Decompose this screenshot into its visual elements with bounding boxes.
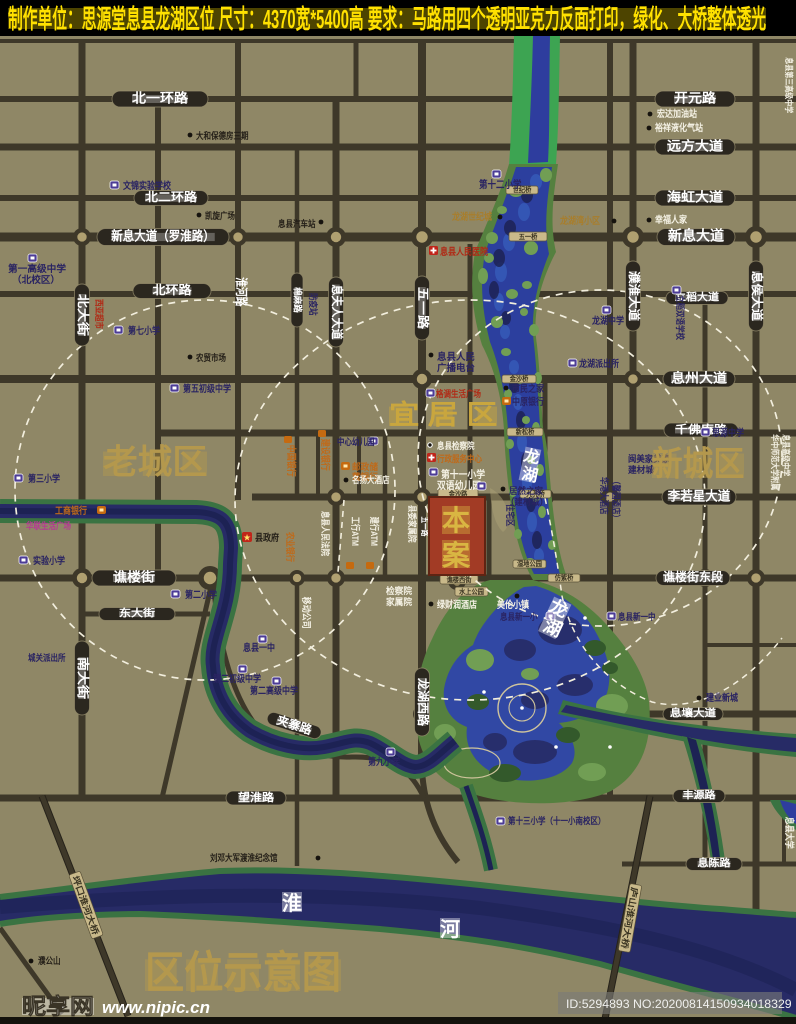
svg-text:息县人民: 息县人民 <box>437 351 475 363</box>
svg-text:水上公园: 水上公园 <box>459 587 484 596</box>
svg-text:农贸市场: 农贸市场 <box>195 352 226 363</box>
svg-text:★: ★ <box>243 533 251 543</box>
svg-text:息夫人大道: 息夫人大道 <box>330 285 345 340</box>
svg-text:新松桥: 新松桥 <box>516 427 535 436</box>
svg-text:凯旋广场: 凯旋广场 <box>205 210 235 221</box>
svg-text:制作单位：思源堂息县龙湖区位 尺寸：4370宽*5400高: 制作单位：思源堂息县龙湖区位 尺寸：4370宽*5400高 要求：马路用四个透明… <box>8 4 766 34</box>
svg-text:谯楼西街: 谯楼西街 <box>447 575 472 584</box>
svg-text:防疫站: 防疫站 <box>308 293 319 316</box>
svg-text:第五初级中学: 第五初级中学 <box>183 383 231 395</box>
svg-text:第二高级中学: 第二高级中学 <box>250 685 298 697</box>
svg-text:息州大道: 息州大道 <box>671 370 727 385</box>
svg-text:宜 居 区: 宜 居 区 <box>389 399 497 430</box>
svg-text:第三小学: 第三小学 <box>28 473 60 485</box>
svg-text:龙湖世纪城: 龙湖世纪城 <box>451 211 492 223</box>
svg-text:濮公山: 濮公山 <box>37 955 60 966</box>
svg-text:第十三小学（十一小南校区）: 第十三小学（十一小南校区） <box>508 815 606 826</box>
svg-text:息县大学: 息县大学 <box>783 817 795 849</box>
svg-text:息县汽车站: 息县汽车站 <box>278 218 316 229</box>
svg-text:华港大酒店: 华港大酒店 <box>599 477 610 515</box>
svg-text:西亚超市: 西亚超市 <box>94 299 105 329</box>
svg-text:新息大道: 新息大道 <box>668 228 724 244</box>
svg-text:五一桥: 五一桥 <box>519 232 538 241</box>
svg-text:刘邓大军渡淮纪念馆: 刘邓大军渡淮纪念馆 <box>210 852 278 863</box>
svg-text:实验小学: 实验小学 <box>33 555 65 567</box>
svg-text:南大街: 南大街 <box>76 657 91 699</box>
svg-text:谯楼街: 谯楼街 <box>113 569 155 584</box>
svg-text:（建材城）: （建材城） <box>506 496 548 507</box>
svg-text:息县人民医院: 息县人民医院 <box>440 246 488 258</box>
svg-text:华中师范大学附属: 华中师范大学附属 <box>770 434 780 490</box>
svg-text:淮河路: 淮河路 <box>234 277 249 307</box>
svg-text:息县高级中学: 息县高级中学 <box>781 434 791 477</box>
svg-text:立稻双语学校: 立稻双语学校 <box>675 295 686 341</box>
svg-text:谯楼街东段: 谯楼街东段 <box>663 569 724 584</box>
svg-text:龙湖湾小区: 龙湖湾小区 <box>559 215 600 227</box>
svg-text:濮淮大道: 濮淮大道 <box>627 271 642 321</box>
svg-text:县政府: 县政府 <box>255 532 279 544</box>
svg-text:新城区: 新城区 <box>652 445 744 483</box>
svg-text:第十一小学: 第十一小学 <box>441 468 485 481</box>
svg-text:湿地公园: 湿地公园 <box>517 559 542 568</box>
svg-text:案: 案 <box>442 539 471 571</box>
svg-text:淮: 淮 <box>282 892 302 915</box>
svg-text:城关派出所: 城关派出所 <box>28 652 66 663</box>
svg-text:仿紫桥: 仿紫桥 <box>555 573 574 582</box>
svg-text:龙湖派出所: 龙湖派出所 <box>578 358 619 370</box>
svg-text:幸福人家: 幸福人家 <box>655 214 687 226</box>
svg-text:第二小学: 第二小学 <box>185 589 217 601</box>
svg-text:（北校区）: （北校区） <box>12 274 60 286</box>
svg-text:住宅区: 住宅区 <box>505 504 516 527</box>
svg-text:北一环路: 北一环路 <box>132 90 189 105</box>
svg-text:中心幼儿园: 中心幼儿园 <box>337 436 375 447</box>
svg-text:市民之家: 市民之家 <box>512 383 544 395</box>
svg-text:大和保德房三期: 大和保德房三期 <box>196 130 249 141</box>
svg-text:息陈路: 息陈路 <box>698 857 732 870</box>
svg-text:建材城: 建材城 <box>628 464 654 475</box>
svg-text:新息大道（罗淮路）: 新息大道（罗淮路） <box>111 227 215 243</box>
svg-text:行政服务中心: 行政服务中心 <box>436 453 482 464</box>
svg-text:金沙桥: 金沙桥 <box>509 374 529 383</box>
svg-text:农业银行: 农业银行 <box>285 531 296 562</box>
svg-text:移动公司: 移动公司 <box>300 597 312 629</box>
svg-text:邮政储: 邮政储 <box>352 461 378 472</box>
svg-text:李若星大道: 李若星大道 <box>667 488 730 503</box>
svg-text:丰源路: 丰源路 <box>683 789 717 802</box>
svg-text:裕祥液化气站: 裕祥液化气站 <box>654 122 703 134</box>
svg-text:格调生活广场: 格调生活广场 <box>436 388 481 399</box>
svg-text:居然之家: 居然之家 <box>509 485 544 496</box>
svg-text:第九小学: 第九小学 <box>368 756 400 768</box>
svg-text:华联生活广场: 华联生活广场 <box>26 520 71 531</box>
svg-text:区位示意图: 区位示意图 <box>145 948 341 997</box>
svg-text:文锦实验学校: 文锦实验学校 <box>122 180 171 192</box>
svg-text:工商银行: 工商银行 <box>55 505 87 517</box>
svg-text:息侯大道: 息侯大道 <box>750 271 765 321</box>
svg-text:第二初级中学: 第二初级中学 <box>213 673 261 685</box>
svg-text:（馨园酒店）: （馨园酒店） <box>611 477 622 522</box>
svg-text:双语幼儿园: 双语幼儿园 <box>437 479 481 492</box>
svg-text:息县新一小: 息县新一小 <box>500 611 538 622</box>
svg-text:昵享网: 昵享网 <box>22 994 94 1019</box>
svg-text:思源中学: 思源中学 <box>712 427 744 439</box>
svg-text:建设银行: 建设银行 <box>319 438 331 471</box>
svg-text:棉麻路: 棉麻路 <box>293 287 304 313</box>
svg-text:第一高级中学: 第一高级中学 <box>8 263 66 275</box>
svg-text:第十二小学: 第十二小学 <box>479 178 522 191</box>
svg-text:广播电台: 广播电台 <box>437 362 475 374</box>
svg-text:息县检察院: 息县检察院 <box>437 440 475 451</box>
svg-text:中国银行: 中国银行 <box>285 445 297 477</box>
svg-text:望淮路: 望淮路 <box>238 790 275 804</box>
svg-text:北大街: 北大街 <box>76 294 91 336</box>
svg-text:建业新城: 建业新城 <box>705 692 738 704</box>
svg-text:名扬大酒店: 名扬大酒店 <box>352 474 390 485</box>
svg-text:息县第三高级中学: 息县第三高级中学 <box>784 57 794 114</box>
svg-text:ID:5294893 NO:2020081415093401: ID:5294893 NO:20200814150934018329 <box>566 997 792 1011</box>
svg-text:海虹大道: 海虹大道 <box>667 189 723 204</box>
svg-text:第七小学: 第七小学 <box>128 325 160 337</box>
svg-text:远方大道: 远方大道 <box>667 138 723 153</box>
svg-text:老城区: 老城区 <box>103 443 207 481</box>
svg-text:家属院: 家属院 <box>386 596 412 607</box>
svg-text:息县新一中: 息县新一中 <box>618 611 656 622</box>
svg-text:五一路: 五一路 <box>416 287 431 330</box>
svg-text:息壤大道: 息壤大道 <box>670 707 716 720</box>
svg-text:本: 本 <box>442 505 470 536</box>
svg-text:绿财润酒店: 绿财润酒店 <box>437 599 477 611</box>
svg-text:宏达加油站: 宏达加油站 <box>657 108 697 120</box>
svg-text:东大街: 东大街 <box>119 607 155 620</box>
svg-text:息县人民法院: 息县人民法院 <box>320 511 331 556</box>
svg-text:开元路: 开元路 <box>674 90 717 105</box>
svg-text:建行ATM: 建行ATM <box>368 516 380 546</box>
svg-text:检察院: 检察院 <box>386 585 412 596</box>
svg-text:www.nipic.cn: www.nipic.cn <box>102 998 210 1017</box>
svg-text:北环路: 北环路 <box>153 282 193 297</box>
svg-text:工行ATM: 工行ATM <box>349 517 361 546</box>
svg-text:河: 河 <box>440 918 460 941</box>
svg-text:县委家属院: 县委家属院 <box>407 505 418 543</box>
svg-text:中原银行: 中原银行 <box>512 396 544 408</box>
svg-text:美伦小镇: 美伦小镇 <box>497 599 529 611</box>
svg-text:龙湖西路: 龙湖西路 <box>416 678 431 727</box>
svg-text:息县一中: 息县一中 <box>243 642 275 654</box>
svg-text:龙湖中学: 龙湖中学 <box>591 315 624 327</box>
